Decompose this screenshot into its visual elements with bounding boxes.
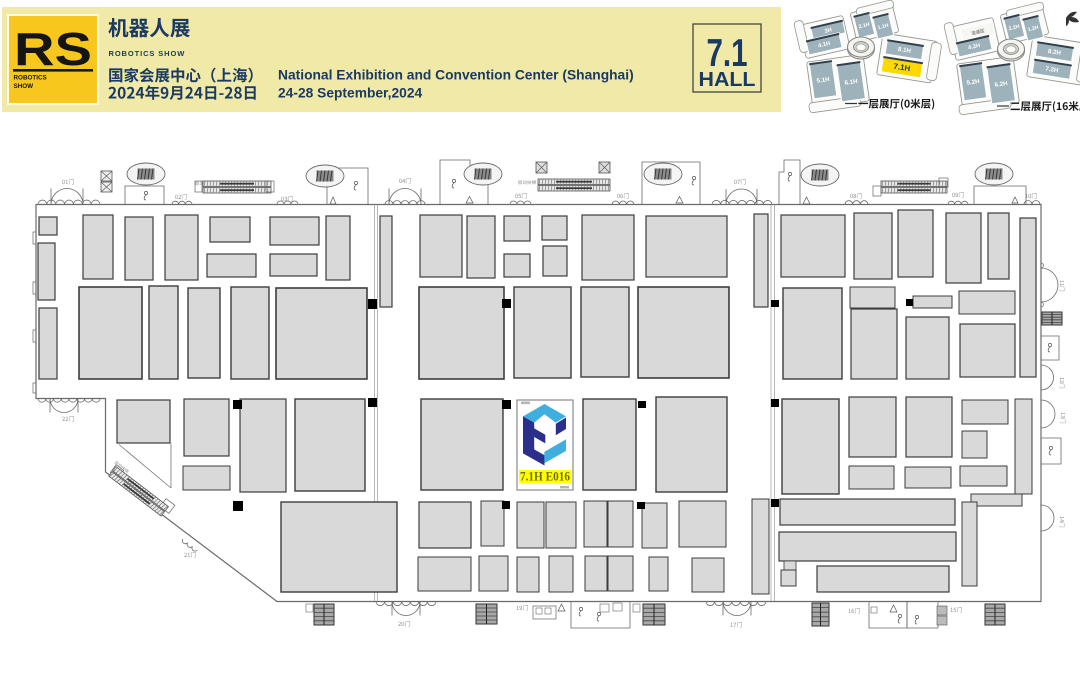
svg-text:7.1H E016: 7.1H E016 <box>520 470 570 484</box>
svg-text:National Exhibition and Conven: National Exhibition and Convention Cente… <box>278 68 634 83</box>
svg-text:24-28 September,2024: 24-28 September,2024 <box>278 86 423 101</box>
svg-text:ROBOTICS: ROBOTICS <box>14 75 47 82</box>
svg-text:SHOW: SHOW <box>14 83 34 90</box>
svg-text:HALL: HALL <box>699 69 756 91</box>
svg-text:ROBOTICS SHOW: ROBOTICS SHOW <box>109 49 186 58</box>
svg-text:RS: RS <box>14 23 92 75</box>
